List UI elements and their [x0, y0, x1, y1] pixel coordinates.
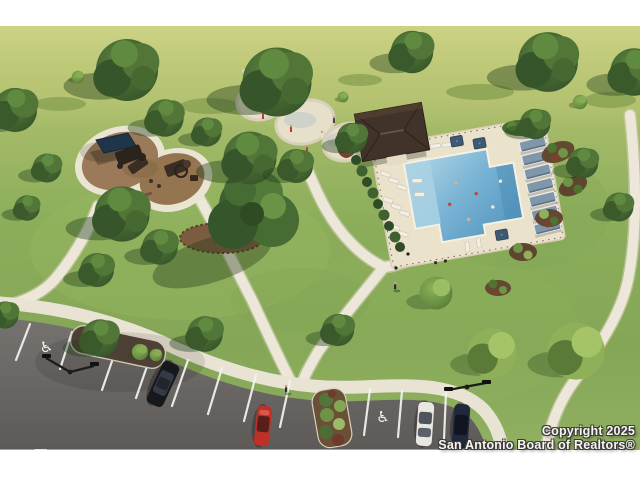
margin-band-top [0, 0, 640, 26]
scene-canvas: ♿ ♿ [0, 0, 640, 480]
margin-band-bottom [0, 450, 640, 480]
aerial-rendering: ♿ ♿ [0, 0, 640, 480]
pool-umbrella [473, 137, 487, 149]
watermark-line-2: San Antonio Board of Realtors® [438, 438, 635, 452]
handicap-marking-icon: ♿ [376, 408, 389, 426]
pool-umbrella [450, 135, 464, 147]
pool-umbrella [495, 229, 509, 241]
watermark: Copyright 2025 San Antonio Board of Real… [438, 424, 635, 452]
watermark-line-1: Copyright 2025 [438, 424, 635, 438]
